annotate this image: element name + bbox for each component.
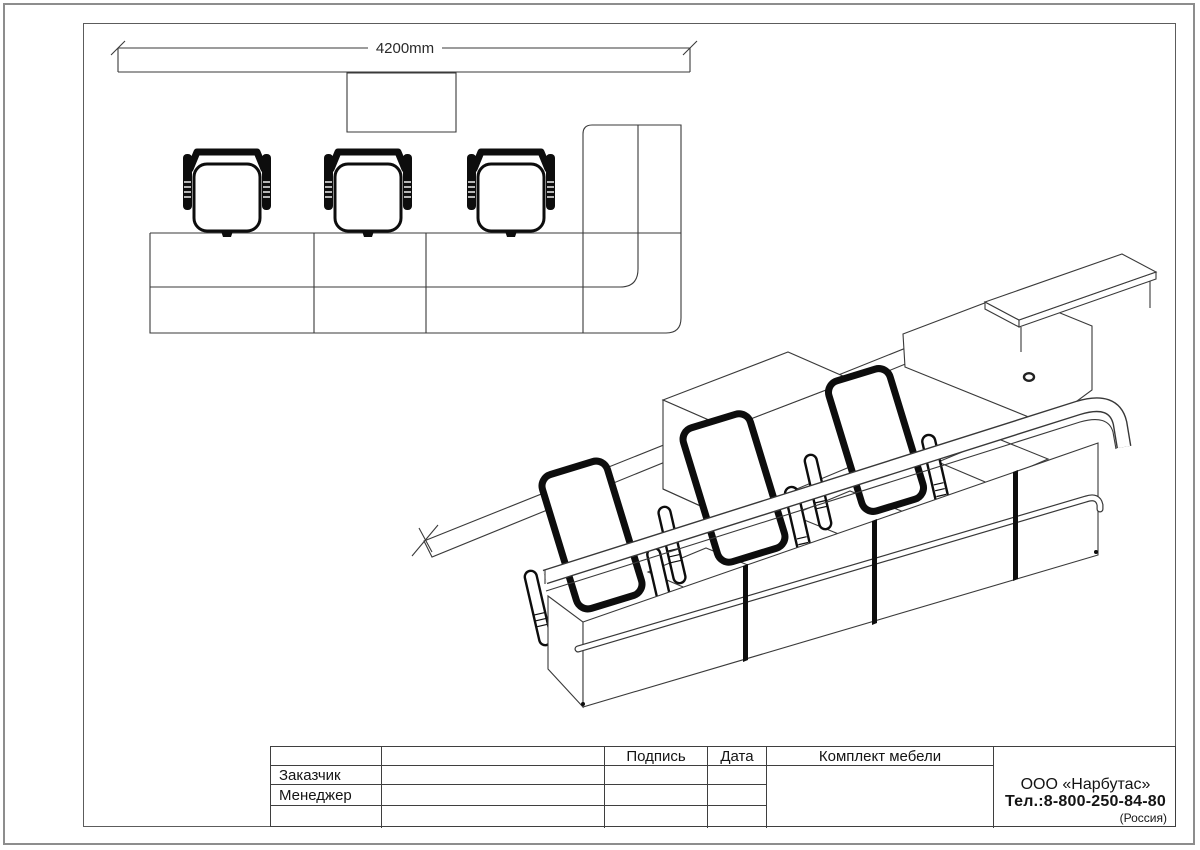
perspective-view (412, 254, 1156, 707)
company-phone: Тел.:8-800-250-84-80 (1005, 793, 1166, 810)
company-info: ООО «Нарбутас» Тел.:8-800-250-84-80 (Рос… (994, 747, 1177, 828)
empty-cell (382, 747, 605, 766)
iso-panel-divider (1013, 470, 1018, 581)
title-block: Подпись Дата Комплект мебели ООО «Нарбут… (270, 746, 1176, 827)
empty-cell (382, 785, 605, 806)
company-country: (Россия) (1120, 810, 1171, 827)
date-header: Дата (708, 747, 767, 766)
empty-cell (382, 766, 605, 785)
empty-cell (605, 785, 708, 806)
cable-grommet-icon (1024, 373, 1034, 381)
empty-cell (605, 806, 708, 828)
plan-view: 4200mm (111, 40, 697, 333)
iso-panel-divider (743, 564, 748, 662)
furniture-set-header: Комплект мебели (767, 747, 994, 766)
empty-cell (382, 806, 605, 828)
empty-cell (708, 806, 767, 828)
furniture-set-body (767, 766, 994, 828)
empty-cell (271, 747, 382, 766)
plan-meeting-table (347, 73, 456, 132)
drawing-canvas: 4200mm (0, 0, 1200, 850)
manager-label: Менеджер (271, 785, 382, 806)
dimension-label: 4200mm (376, 40, 434, 57)
iso-return-unit (903, 254, 1156, 424)
customer-label: Заказчик (271, 766, 382, 785)
signature-header: Подпись (605, 747, 708, 766)
empty-cell (708, 785, 767, 806)
drawing-sheet: 4200mm (0, 0, 1200, 850)
empty-cell (271, 806, 382, 828)
office-chair-plan-icon (183, 152, 271, 237)
iso-panel-divider (872, 519, 877, 625)
empty-cell (708, 766, 767, 785)
plan-dimension: 4200mm (111, 40, 697, 72)
empty-cell (605, 766, 708, 785)
office-chair-plan-icon (324, 152, 412, 237)
office-chair-plan-icon (467, 152, 555, 237)
company-name: ООО «Нарбутас» (1021, 776, 1151, 793)
